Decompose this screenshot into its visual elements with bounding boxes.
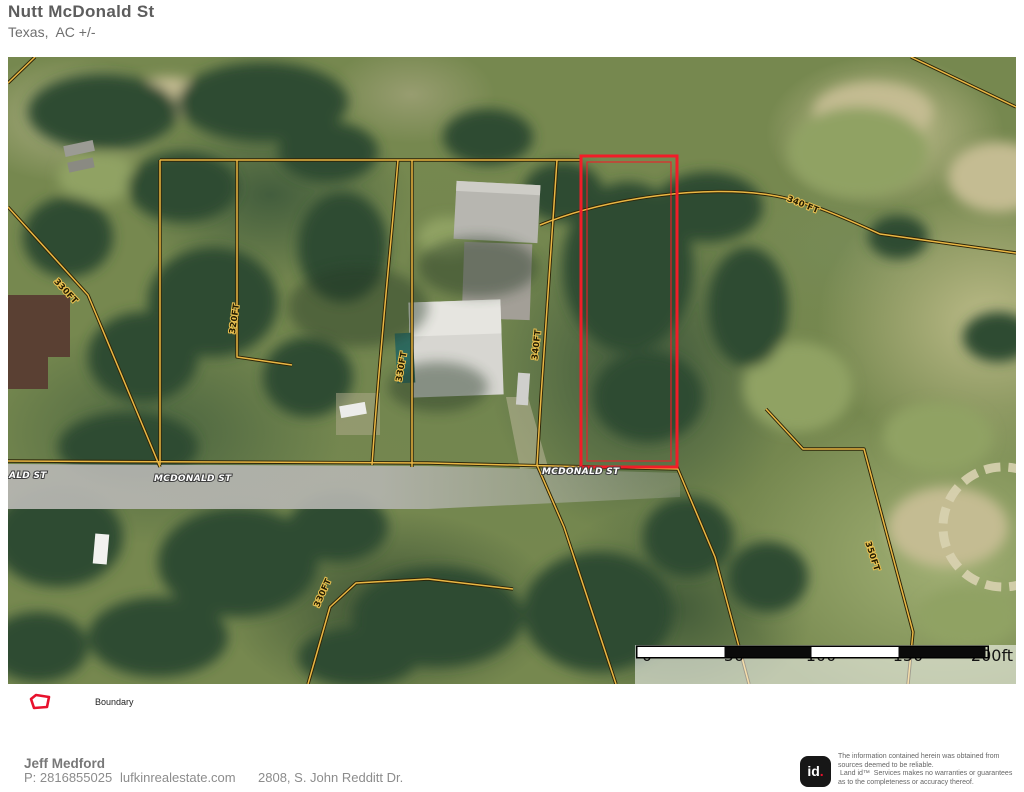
logo-red-dot: . (820, 763, 824, 779)
disclaimer-line-4: as to the completeness or accuracy there… (838, 779, 1022, 788)
page-subtitle: Texas, AC +/- (8, 24, 154, 40)
header: Nutt McDonald St Texas, AC +/- (8, 2, 154, 40)
scale-bar: 0 50 100 150 200ft (635, 645, 1016, 684)
car-silver (516, 373, 530, 406)
legend-label-boundary: Boundary (95, 697, 134, 707)
truck-white (93, 533, 110, 564)
road-label-mcdonald-st-west: MCDONALD ST (154, 474, 232, 484)
agent-name: Jeff Medford (24, 756, 105, 771)
report-page: Nutt McDonald St Texas, AC +/- (0, 0, 1024, 792)
dim-label-340ft-northeast: 340 FT (785, 194, 820, 216)
disclaimer-line-2: sources deemed to be reliable. (838, 762, 1022, 771)
aerial-map: ALD ST MCDONALD ST MCDONALD ST 330FT 320… (8, 57, 1016, 684)
land-id-logo: id. (800, 756, 831, 787)
page-title: Nutt McDonald St (8, 2, 154, 22)
disclaimer-line-1: The information contained herein was obt… (838, 753, 1022, 762)
scale-bar-segments (635, 645, 991, 660)
disclaimer-line-3: Land id™ Services makes no warranties or… (838, 770, 1022, 779)
agent-address: 2808, S. John Redditt Dr. (258, 770, 403, 785)
agent-phone: P: 2816855025 (24, 770, 112, 785)
road-label-ald-st: ALD ST (8, 471, 47, 481)
disclaimer-text: The information contained herein was obt… (838, 753, 1022, 787)
map-overlay: ALD ST MCDONALD ST MCDONALD ST 330FT 320… (8, 57, 1016, 684)
building-brown-house (8, 295, 70, 389)
dim-label-350ft: 350FT (862, 540, 881, 572)
agent-website: lufkinrealestate.com (120, 770, 236, 785)
dim-label-340ft-west: 340FT (530, 329, 543, 360)
footer-contact-row: P: 2816855025 lufkinrealestate.com 2808,… (0, 770, 600, 788)
boundary-legend-icon (28, 692, 54, 712)
road-label-mcdonald-st-east: MCDONALD ST (542, 467, 620, 477)
